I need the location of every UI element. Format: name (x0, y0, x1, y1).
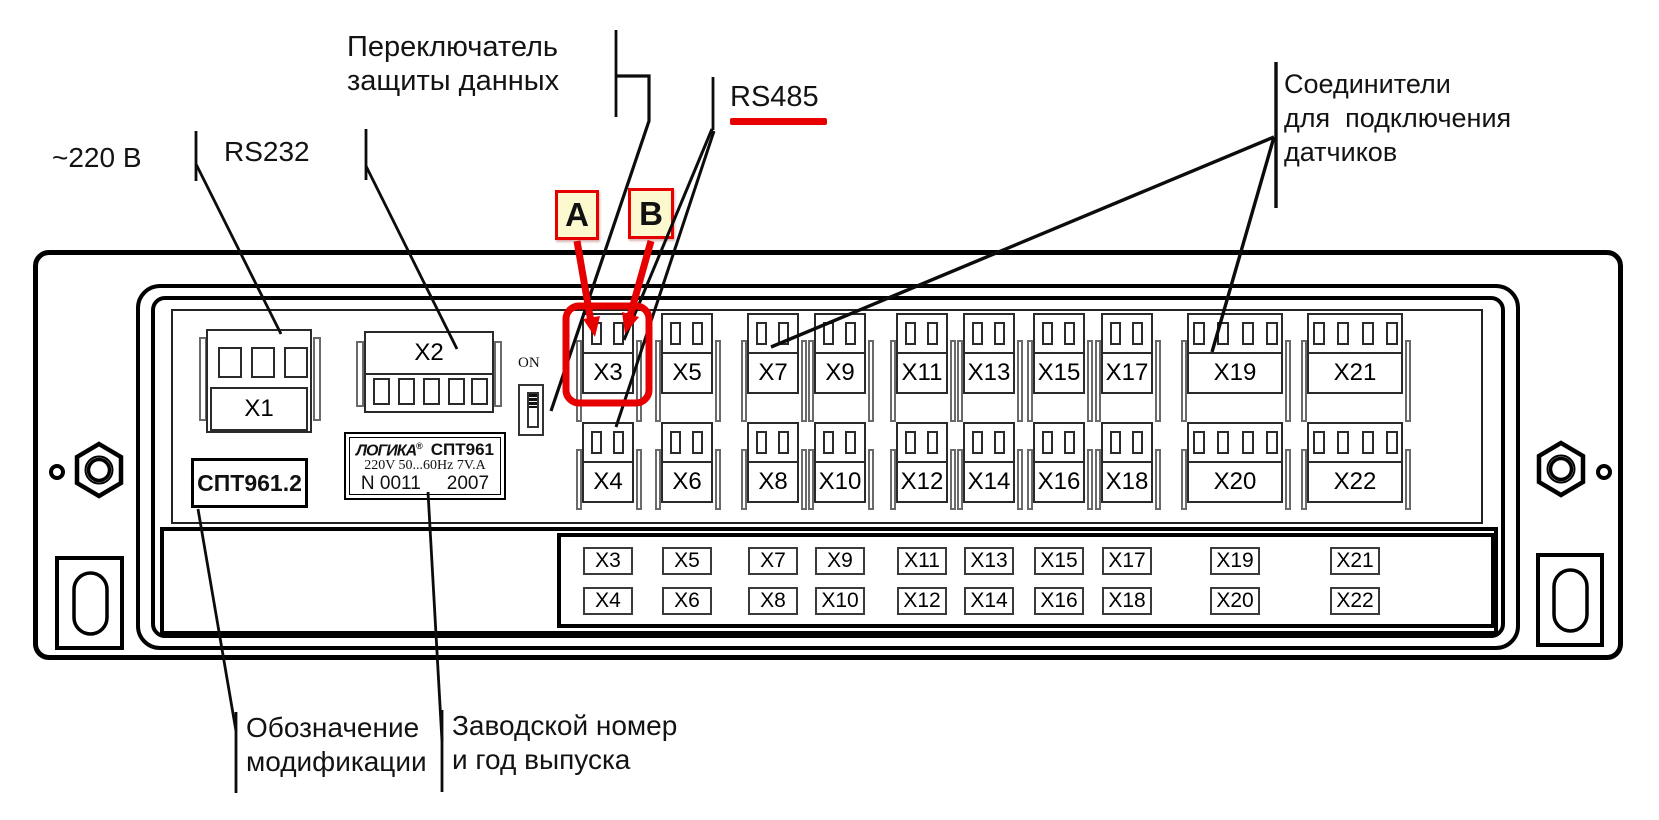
x7-pin (756, 322, 767, 345)
x16-pin (1064, 431, 1075, 454)
x20-pin (1217, 431, 1229, 454)
x14-flange-right (1017, 449, 1023, 510)
label-rs232: RS232 (224, 135, 310, 169)
x1-pin (218, 347, 242, 378)
x15-label: X15 (1033, 352, 1085, 394)
serial-number: N 0011 (361, 473, 421, 495)
wire-tag-b: B (628, 188, 674, 239)
data-protect-switch (518, 384, 544, 436)
x3-pin (591, 322, 602, 345)
x2-pin (373, 378, 390, 405)
x21-pin (1337, 322, 1349, 345)
label-data-protect: Переключатель защиты данных (347, 30, 559, 98)
x2-flange-left (356, 341, 364, 407)
strip-label-x10: X10 (815, 587, 865, 615)
x19-pin (1266, 322, 1278, 345)
label-rs485: RS485 (730, 80, 819, 114)
x6-pin (670, 431, 681, 454)
x2-pin (398, 378, 415, 405)
strip-label-x21: X21 (1330, 547, 1380, 575)
x18-flange-right (1155, 449, 1161, 510)
strip-label-x20: X20 (1210, 587, 1260, 615)
x8-pin (756, 431, 767, 454)
x13-label: X13 (963, 352, 1015, 394)
strip-label-x5: X5 (662, 547, 712, 575)
x22-pin (1337, 431, 1349, 454)
strip-label-x16: X16 (1034, 587, 1084, 615)
strip-label-x17: X17 (1102, 547, 1152, 575)
strip-label-x3: X3 (583, 547, 633, 575)
strip-label-x6: X6 (662, 587, 712, 615)
x5-label: X5 (661, 352, 713, 394)
x19-label: X19 (1187, 352, 1283, 394)
x12-label: X12 (896, 461, 948, 503)
x3-label: X3 (582, 352, 634, 394)
x5-pin (692, 322, 703, 345)
nameplate-serial: N 0011 2007 (356, 473, 494, 495)
x15-pin (1064, 322, 1075, 345)
x4-pin (591, 431, 602, 454)
x7-flange-right (801, 340, 807, 422)
x10-flange-right (868, 449, 874, 510)
x3-pin (613, 322, 624, 345)
x1-pin (251, 347, 275, 378)
x14-label: X14 (963, 461, 1015, 503)
rs485-underline (730, 118, 827, 125)
x19-pin (1193, 322, 1205, 345)
x11-pin (905, 322, 916, 345)
x17-flange-right (1155, 340, 1161, 422)
x22-pin (1386, 431, 1398, 454)
nameplate-inner: ЛОГИКА® СПТ961 220V 50...60Hz 7V.A N 001… (349, 437, 501, 495)
x16-label: X16 (1033, 461, 1085, 503)
x4-flange-right (636, 449, 642, 510)
x17-label: X17 (1101, 352, 1153, 394)
x22-flange-right (1405, 449, 1411, 510)
x21-label: X21 (1307, 352, 1403, 394)
x9-pin (845, 322, 856, 345)
on-label: ON (518, 355, 548, 372)
x10-pin (823, 431, 834, 454)
label-modification: Обозначение модификации (246, 711, 427, 779)
x18-label: X18 (1101, 461, 1153, 503)
x6-pin (692, 431, 703, 454)
nameplate-model: СПТ961 (431, 440, 494, 460)
x20-label: X20 (1187, 461, 1283, 503)
x11-flange-right (950, 340, 956, 422)
spt961-rear-panel-diagram: X1 X2 ON СПТ961.2 ЛОГИКА® СПТ961 220V 50… (0, 0, 1659, 820)
x1-label: X1 (210, 387, 308, 431)
x8-pin (778, 431, 789, 454)
x13-pin (972, 322, 983, 345)
nameplate: ЛОГИКА® СПТ961 220V 50...60Hz 7V.A N 001… (344, 432, 506, 500)
x7-label: X7 (747, 352, 799, 394)
x5-flange-right (715, 340, 721, 422)
x1-pin (284, 347, 308, 378)
x16-flange-right (1087, 449, 1093, 510)
x11-label: X11 (896, 352, 948, 394)
x10-pin (845, 431, 856, 454)
x4-pin (613, 431, 624, 454)
x2-label: X2 (364, 331, 494, 375)
x9-pin (823, 322, 834, 345)
dip-knob (529, 394, 537, 408)
x22-label: X22 (1307, 461, 1403, 503)
x18-pin (1110, 431, 1121, 454)
x3-flange-right (636, 340, 642, 422)
x20-flange-right (1285, 449, 1291, 510)
x22-pin (1362, 431, 1374, 454)
x4-label: X4 (582, 461, 634, 503)
x8-label: X8 (747, 461, 799, 503)
strip-label-x7: X7 (748, 547, 798, 575)
x19-pin (1217, 322, 1229, 345)
x19-flange-right (1285, 340, 1291, 422)
modification-box: СПТ961.2 (191, 458, 308, 508)
x12-flange-right (950, 449, 956, 510)
x22-pin (1313, 431, 1325, 454)
x12-pin (905, 431, 916, 454)
x16-pin (1042, 431, 1053, 454)
strip-label-x13: X13 (964, 547, 1014, 575)
x1-flange-right (313, 337, 321, 421)
strip-label-x4: X4 (583, 587, 633, 615)
strip-label-x12: X12 (897, 587, 947, 615)
year: 2007 (447, 473, 489, 495)
x15-pin (1042, 322, 1053, 345)
strip-label-x8: X8 (748, 587, 798, 615)
x9-label: X9 (814, 352, 866, 394)
strip-label-x22: X22 (1330, 587, 1380, 615)
strip-label-x18: X18 (1102, 587, 1152, 615)
x13-pin (994, 322, 1005, 345)
x7-pin (778, 322, 789, 345)
x15-flange-right (1087, 340, 1093, 422)
x14-pin (972, 431, 983, 454)
x20-pin (1242, 431, 1254, 454)
strip-label-x19: X19 (1210, 547, 1260, 575)
x14-pin (994, 431, 1005, 454)
x20-pin (1193, 431, 1205, 454)
x2-pin (423, 378, 440, 405)
x18-pin (1132, 431, 1143, 454)
nameplate-rating: 220V 50...60Hz 7V.A (356, 458, 494, 474)
x2-pin (471, 378, 488, 405)
x20-pin (1266, 431, 1278, 454)
x19-pin (1242, 322, 1254, 345)
label-serial: Заводской номер и год выпуска (452, 709, 677, 777)
x21-flange-right (1405, 340, 1411, 422)
x12-pin (927, 431, 938, 454)
strip-label-x15: X15 (1034, 547, 1084, 575)
x6-label: X6 (661, 461, 713, 503)
x6-flange-right (715, 449, 721, 510)
x13-flange-right (1017, 340, 1023, 422)
strip-label-x9: X9 (815, 547, 865, 575)
x2-flange-right (494, 341, 502, 407)
label-220v: ~220 В (52, 141, 142, 175)
x2-pin (448, 378, 465, 405)
x17-pin (1132, 322, 1143, 345)
wire-tag-a: A (555, 190, 599, 240)
x21-pin (1313, 322, 1325, 345)
x17-pin (1110, 322, 1121, 345)
strip-label-x11: X11 (897, 547, 947, 575)
x21-pin (1362, 322, 1374, 345)
x9-flange-right (868, 340, 874, 422)
x21-pin (1386, 322, 1398, 345)
x5-pin (670, 322, 681, 345)
x10-label: X10 (814, 461, 866, 503)
x11-pin (927, 322, 938, 345)
x8-flange-right (801, 449, 807, 510)
label-sensors: Соединители для подключения датчиков (1284, 67, 1511, 169)
strip-label-x14: X14 (964, 587, 1014, 615)
